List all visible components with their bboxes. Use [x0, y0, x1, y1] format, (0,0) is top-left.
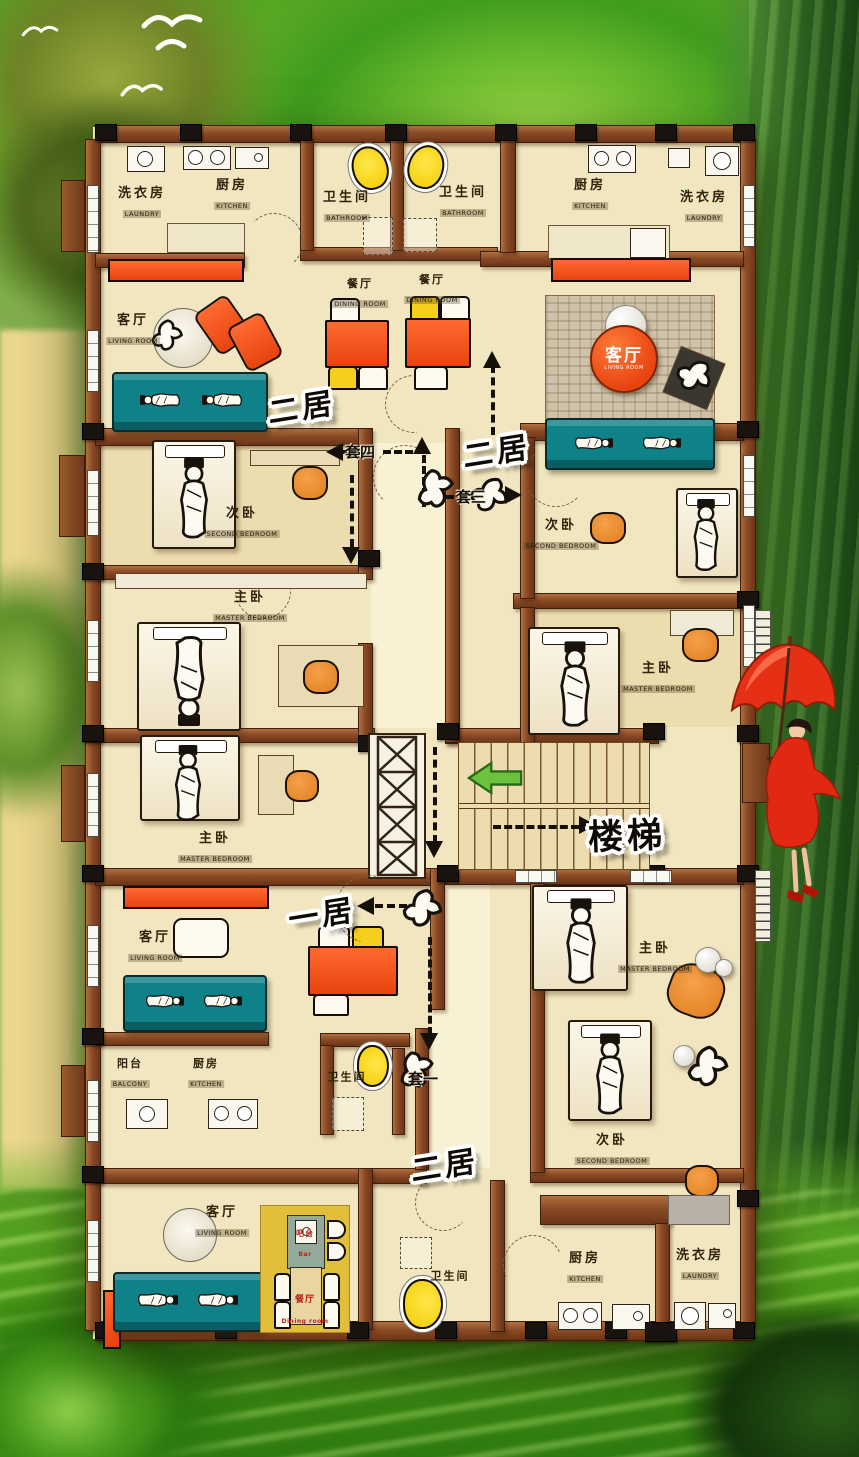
- wall: [513, 593, 744, 609]
- room-label-living: 客厅LIVING ROOM: [195, 1205, 249, 1239]
- room-label-laundry: 洗衣房LAUNDRY: [680, 190, 728, 224]
- route-arrow-head: [413, 437, 431, 454]
- column: [575, 124, 597, 141]
- shoe: [802, 884, 819, 898]
- room-label-dining: 餐厅DINING ROOM: [404, 272, 460, 306]
- column: [525, 1322, 547, 1339]
- floor-plan: 客厅 LIVING ROOM: [85, 125, 757, 1345]
- bird-icon: [140, 8, 204, 58]
- window: [87, 1080, 99, 1142]
- bed: [532, 885, 628, 991]
- wall: [490, 1180, 505, 1332]
- wall: [445, 868, 744, 885]
- route-arrow: [428, 937, 432, 1035]
- desk-chair: [303, 660, 339, 694]
- column: [82, 1166, 104, 1183]
- sink-icon: [126, 1099, 168, 1129]
- shower-icon: [403, 218, 437, 252]
- room-label-kitchen: 厨房KITCHEN: [214, 178, 250, 212]
- wall: [655, 1223, 670, 1325]
- room-label-master-bedroom: 主卧MASTER BEDROOM: [618, 941, 692, 975]
- room-label-second-bedroom: 次卧SECOND BEDROOM: [524, 518, 599, 552]
- column: [180, 124, 202, 141]
- room-label-living: 客厅LIVING ROOM: [106, 313, 160, 347]
- window: [87, 330, 99, 392]
- stove-icon: [558, 1302, 602, 1330]
- exterior-box: [61, 765, 85, 842]
- room-label-kitchen: 厨房KITCHEN: [572, 178, 608, 212]
- stairs-label: 楼梯: [587, 807, 667, 861]
- column: [347, 1322, 369, 1339]
- room-label-master-bedroom: 主卧MASTER BEDROOM: [178, 831, 252, 865]
- route-arrow: [493, 825, 579, 829]
- tv-stand: [551, 258, 691, 282]
- dining-table: [405, 318, 471, 368]
- bed: [140, 735, 240, 821]
- umbrella-lady: [722, 628, 858, 928]
- desk-chair: [292, 466, 328, 500]
- route-arrow: [433, 747, 437, 843]
- room-label-second-bedroom: 次卧SECOND BEDROOM: [575, 1133, 650, 1167]
- shower-icon: [400, 1237, 432, 1269]
- toilet-icon: [403, 1279, 443, 1329]
- dining-chair: [358, 366, 388, 390]
- room-label-bathroom: 卫生间BATHROOM: [439, 185, 487, 219]
- exterior-box: [61, 180, 85, 252]
- stove-icon: [183, 146, 231, 170]
- desk-chair: [685, 1165, 719, 1197]
- window: [87, 470, 99, 536]
- window: [87, 773, 99, 837]
- sofa: [112, 372, 268, 432]
- route-arrow-head: [425, 841, 443, 858]
- route-arrow: [350, 475, 354, 547]
- room-label-living: 客厅LIVING ROOM: [128, 930, 182, 964]
- window: [630, 870, 672, 883]
- sink-icon: [668, 148, 690, 168]
- wall: [540, 1195, 672, 1225]
- room-label-balcony: 阳台BALCONY: [111, 1056, 150, 1090]
- room-label-kitchen: 厨房KITCHEN: [188, 1056, 224, 1090]
- bird-icon: [118, 76, 164, 112]
- room-label-bathroom: 卫生间: [328, 1070, 367, 1085]
- column: [82, 1028, 104, 1045]
- suite-label-4: 套四: [345, 441, 375, 462]
- suite-label-3: 套三: [456, 486, 486, 507]
- route-arrow-head: [326, 443, 343, 461]
- window: [515, 870, 557, 883]
- badge-label: 客厅: [605, 347, 643, 365]
- side-table: [673, 1045, 695, 1067]
- route-arrow: [491, 365, 495, 435]
- desk-chair: [682, 628, 719, 662]
- column: [435, 1322, 457, 1339]
- sofa: [123, 975, 267, 1032]
- wall: [500, 139, 516, 253]
- washer-icon: [674, 1302, 706, 1330]
- washer-icon: [705, 146, 739, 176]
- counter: [668, 1195, 730, 1225]
- room-label-dining: 餐厅DINING ROOM: [332, 276, 388, 310]
- window: [743, 185, 755, 247]
- dining-chair: [313, 994, 349, 1016]
- route-arrow-head: [357, 897, 374, 915]
- room-label-master-bedroom: 主卧MASTER BEDROOM: [621, 661, 695, 695]
- washer-icon: [127, 146, 165, 172]
- column: [737, 421, 759, 438]
- column: [82, 563, 104, 580]
- column: [385, 124, 407, 141]
- window: [743, 455, 755, 517]
- room-label-dining: 餐厅Dining room: [280, 1293, 331, 1327]
- column: [437, 865, 459, 882]
- wall: [95, 1168, 427, 1184]
- window: [87, 925, 99, 987]
- bar-stool: [327, 1242, 346, 1261]
- room-label-bathroom: 卫生间: [431, 1269, 470, 1284]
- column: [82, 423, 104, 440]
- window: [87, 185, 99, 253]
- room-label-kitchen: 厨房KITCHEN: [567, 1251, 603, 1285]
- tv-stand: [123, 886, 269, 909]
- room-label-laundry: 洗衣房LAUNDRY: [118, 186, 166, 220]
- column: [495, 124, 517, 141]
- exterior-box: [61, 1065, 85, 1137]
- bar-stool: [327, 1220, 346, 1239]
- fridge-icon: [630, 228, 666, 258]
- floor-plan-poster: 客厅 LIVING ROOM: [0, 0, 859, 1457]
- route-arrow-head: [342, 547, 360, 564]
- room-label-bar: 吧台Bar: [296, 1226, 314, 1260]
- room-label-bathroom: 卫生间BATHROOM: [323, 190, 371, 224]
- suite-label-1: 套一: [408, 1068, 438, 1089]
- elevator: [368, 733, 426, 879]
- column: [733, 124, 755, 141]
- shower-icon: [332, 1097, 364, 1131]
- desk-chair: [285, 770, 319, 802]
- column: [437, 723, 459, 740]
- column: [82, 725, 104, 742]
- stove-icon: [588, 145, 636, 173]
- wall: [358, 1168, 373, 1330]
- column: [290, 124, 312, 141]
- route-arrow: [383, 450, 413, 454]
- dining-table: [325, 320, 389, 368]
- stairs-up-arrow-icon: [467, 761, 523, 795]
- room-label-laundry: 洗衣房LAUNDRY: [676, 1248, 724, 1282]
- column: [643, 723, 665, 740]
- window: [87, 1220, 99, 1282]
- sink-icon: [708, 1303, 736, 1329]
- bed: [568, 1020, 652, 1121]
- exterior-box: [59, 455, 85, 537]
- door-arc: [245, 213, 303, 271]
- bed: [528, 627, 620, 735]
- column: [95, 124, 117, 141]
- living-room-badge: 客厅 LIVING ROOM: [590, 325, 658, 393]
- sink-icon: [235, 147, 269, 169]
- room-label-master-bedroom: 主卧MASTER BEDROOM: [213, 590, 287, 624]
- bed: [676, 488, 738, 578]
- legs: [794, 850, 809, 890]
- tv-stand: [108, 259, 244, 282]
- column: [82, 865, 104, 882]
- dress: [766, 738, 840, 848]
- badge-sublabel: LIVING ROOM: [604, 365, 644, 371]
- wall: [95, 1032, 269, 1046]
- column: [655, 124, 677, 141]
- kitchen-counter: [167, 223, 245, 253]
- bed: [137, 622, 241, 731]
- room-label-second-bedroom: 次卧SECOND BEDROOM: [205, 506, 280, 540]
- side-table: [715, 959, 733, 977]
- dining-table: [308, 946, 398, 996]
- bird-icon: [20, 18, 60, 48]
- window: [87, 620, 99, 682]
- column: [737, 1190, 759, 1207]
- stove-icon: [208, 1099, 258, 1129]
- route-arrow-head: [483, 351, 501, 368]
- counter-dark: [645, 1322, 677, 1342]
- column: [733, 1322, 755, 1339]
- column: [358, 550, 380, 567]
- sofa: [113, 1272, 263, 1332]
